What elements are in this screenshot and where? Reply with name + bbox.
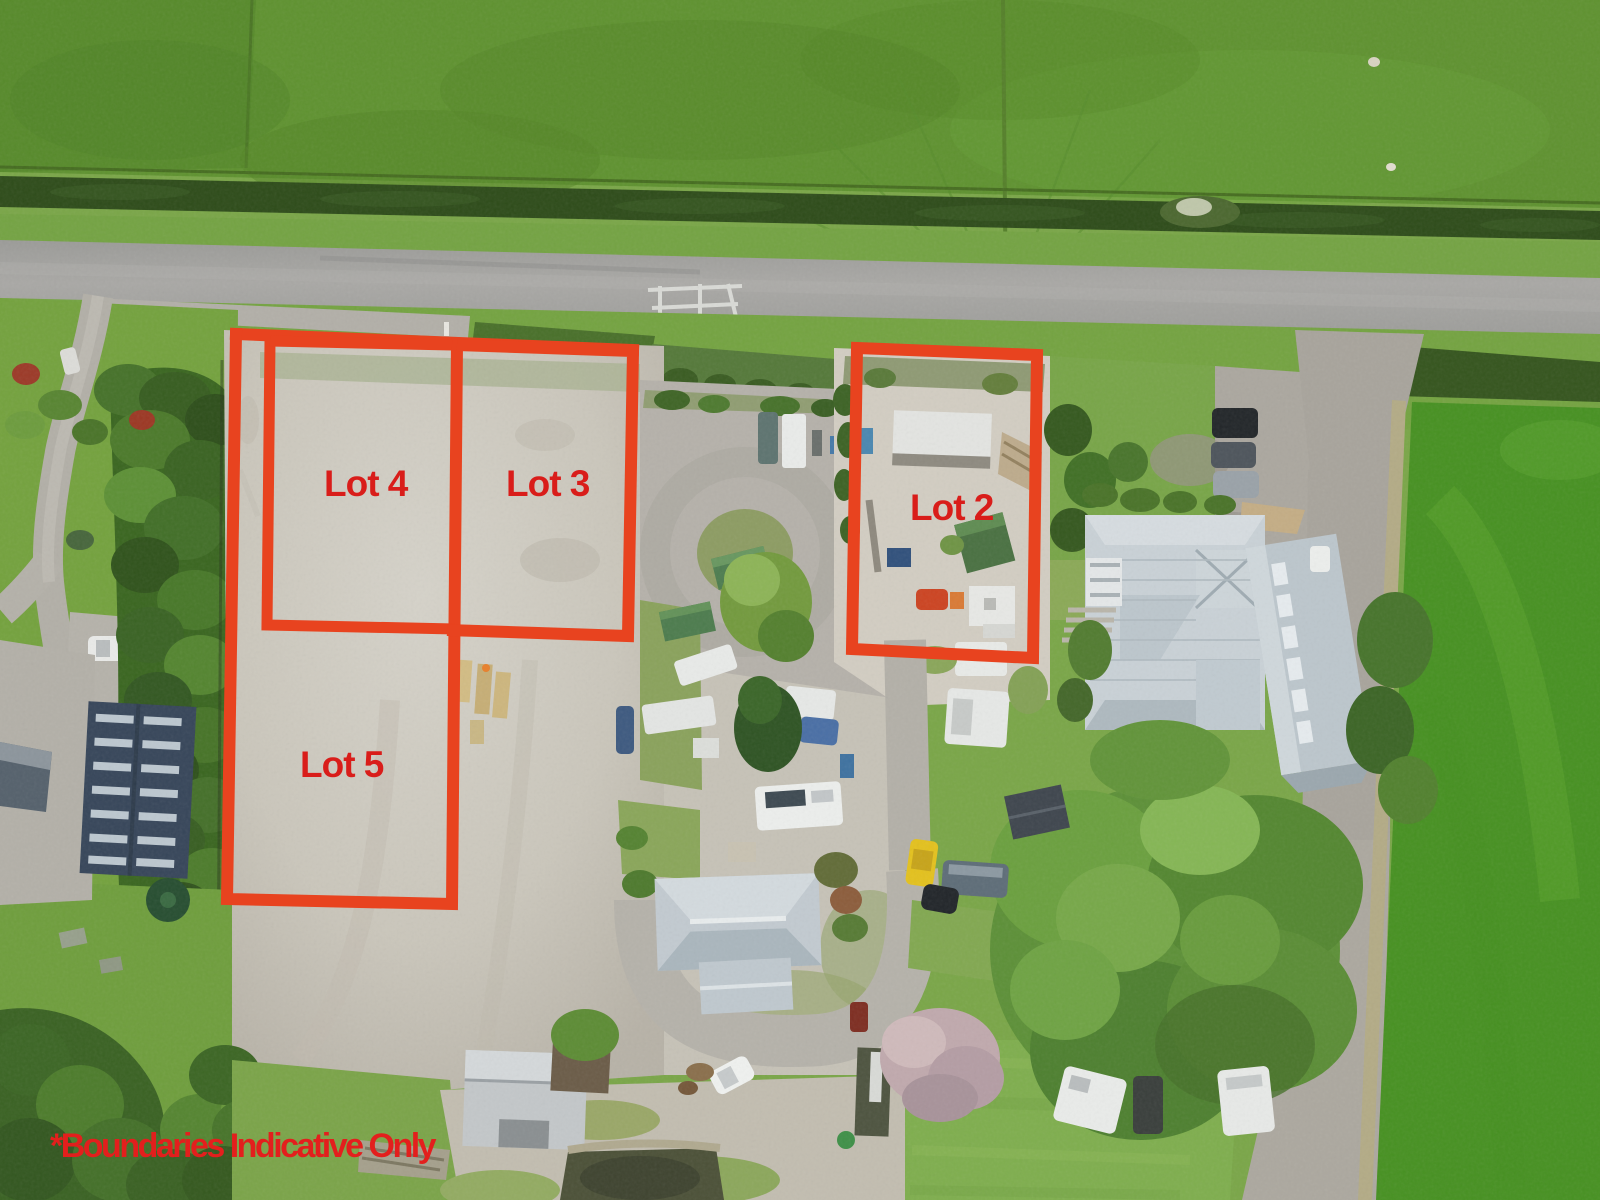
svg-text:*Boundaries Indicative Only: *Boundaries Indicative Only <box>50 1127 437 1165</box>
svg-text:Lot 2: Lot 2 <box>910 487 994 528</box>
svg-text:Lot 4: Lot 4 <box>324 463 409 504</box>
svg-text:Lot 5: Lot 5 <box>300 744 384 785</box>
svg-text:Lot 3: Lot 3 <box>506 463 590 504</box>
